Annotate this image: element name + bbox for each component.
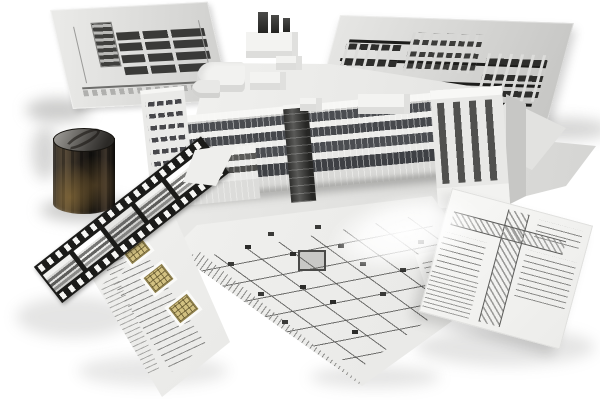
rooftop-chimney (271, 15, 279, 33)
cylinder-top (53, 128, 115, 152)
rooftop-drum-small (192, 80, 220, 98)
cylinder-swirl (63, 125, 102, 153)
window-band (118, 39, 208, 52)
rooftop-box (250, 72, 286, 90)
rooftop-chimney (283, 18, 290, 32)
floor-plan-furniture-marks (0, 0, 6, 4)
rooftop-box (358, 94, 410, 114)
rooftop-box (300, 98, 322, 111)
annotation-lines (514, 249, 577, 309)
window-band (115, 28, 205, 41)
elevation-tower-linework (90, 22, 121, 68)
window-grid (403, 33, 485, 74)
dimension-line (74, 27, 88, 83)
rooftop-box (276, 56, 302, 70)
rooftop-penthouse (246, 32, 298, 58)
bim-collage-scene (0, 0, 600, 400)
rooftop-chimney (258, 12, 268, 33)
cylinder-panorama (53, 128, 115, 214)
window-band (121, 51, 211, 64)
